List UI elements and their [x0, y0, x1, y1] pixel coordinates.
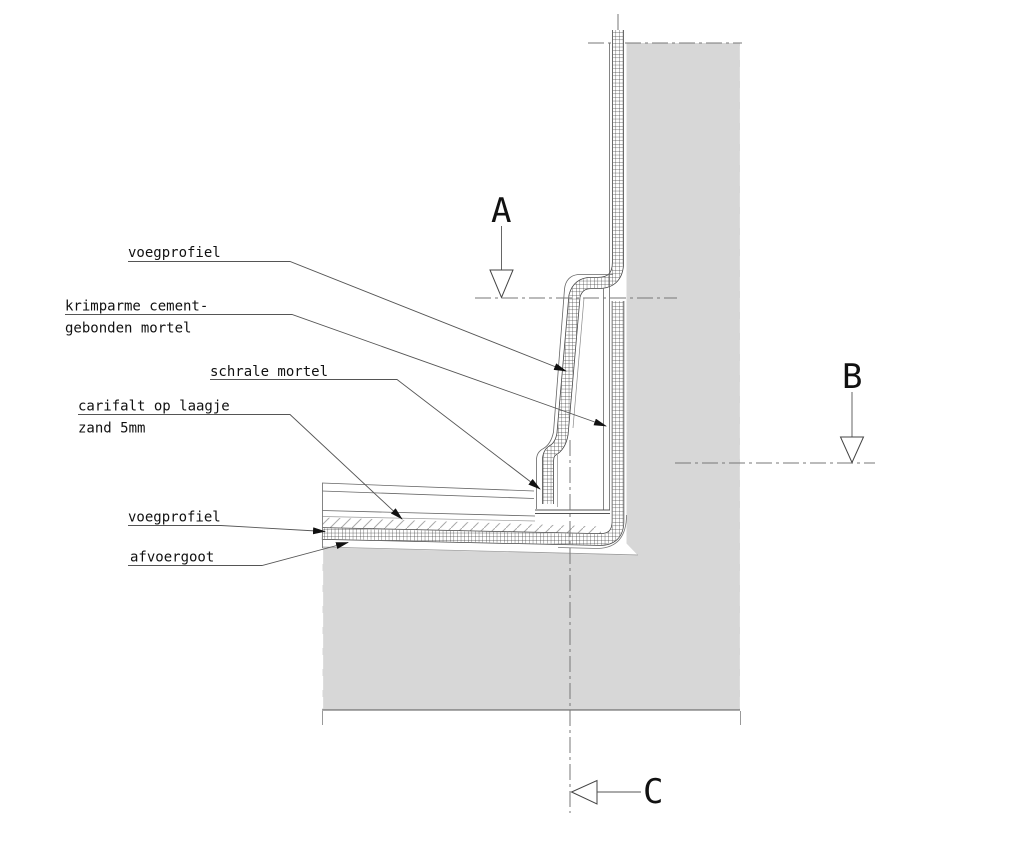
section-marker-b: B: [841, 357, 864, 463]
leader-schrale-mortel: [210, 380, 540, 490]
label-krimparme-line1: krimparme cement-: [65, 299, 208, 315]
section-marker-c: C: [572, 772, 664, 812]
technical-drawing-page: voegprofiel krimparme cement- gebonden m…: [0, 0, 1024, 857]
section-letter-c: C: [643, 772, 663, 812]
section-letter-b: B: [842, 357, 862, 397]
label-voegprofiel-top: voegprofiel: [128, 245, 221, 261]
label-voegprofiel-bottom: voegprofiel: [128, 510, 221, 526]
label-krimparme-line2: gebonden mortel: [65, 321, 191, 337]
floor-layer-lines: [322, 483, 535, 521]
label-carifalt-line2: zand 5mm: [78, 421, 145, 437]
label-carifalt-line1: carifalt op laagje: [78, 399, 230, 415]
construction-detail-drawing: voegprofiel krimparme cement- gebonden m…: [0, 0, 1024, 857]
joint-profile-top: [548, 30, 618, 504]
label-afvoergoot: afvoergoot: [130, 550, 214, 566]
section-c-arrow-icon: [572, 781, 598, 805]
section-a-arrow-icon: [490, 270, 513, 298]
label-schrale-mortel: schrale mortel: [210, 364, 328, 380]
leader-voegprofiel-bottom: [128, 526, 325, 532]
section-marker-a: A: [490, 191, 513, 298]
concrete-section: [323, 43, 741, 710]
section-b-arrow-icon: [841, 437, 864, 463]
callout-labels: voegprofiel krimparme cement- gebonden m…: [65, 245, 328, 566]
section-letter-a: A: [491, 191, 511, 231]
